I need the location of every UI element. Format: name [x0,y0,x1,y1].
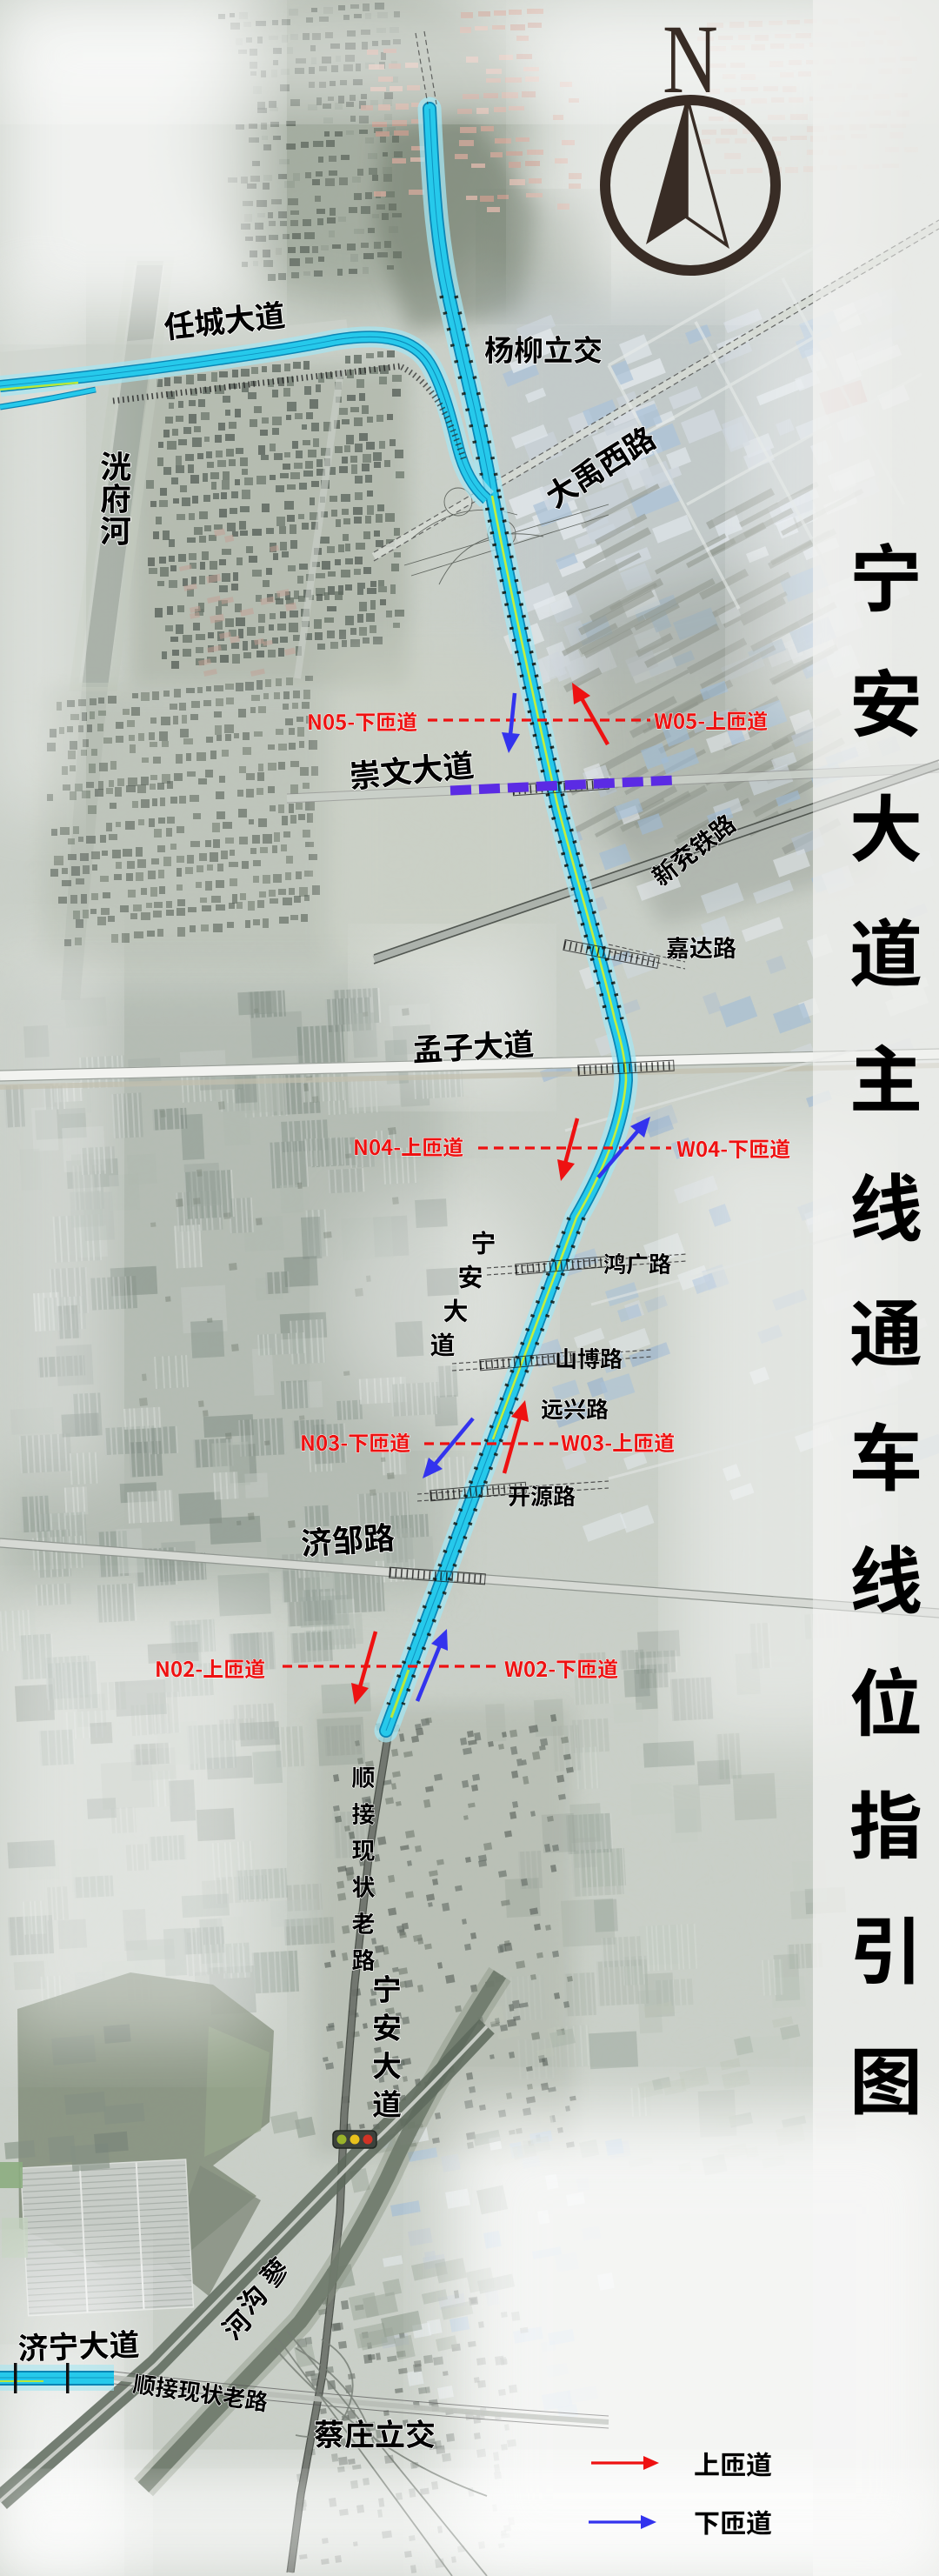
svg-text:N: N [663,5,718,114]
